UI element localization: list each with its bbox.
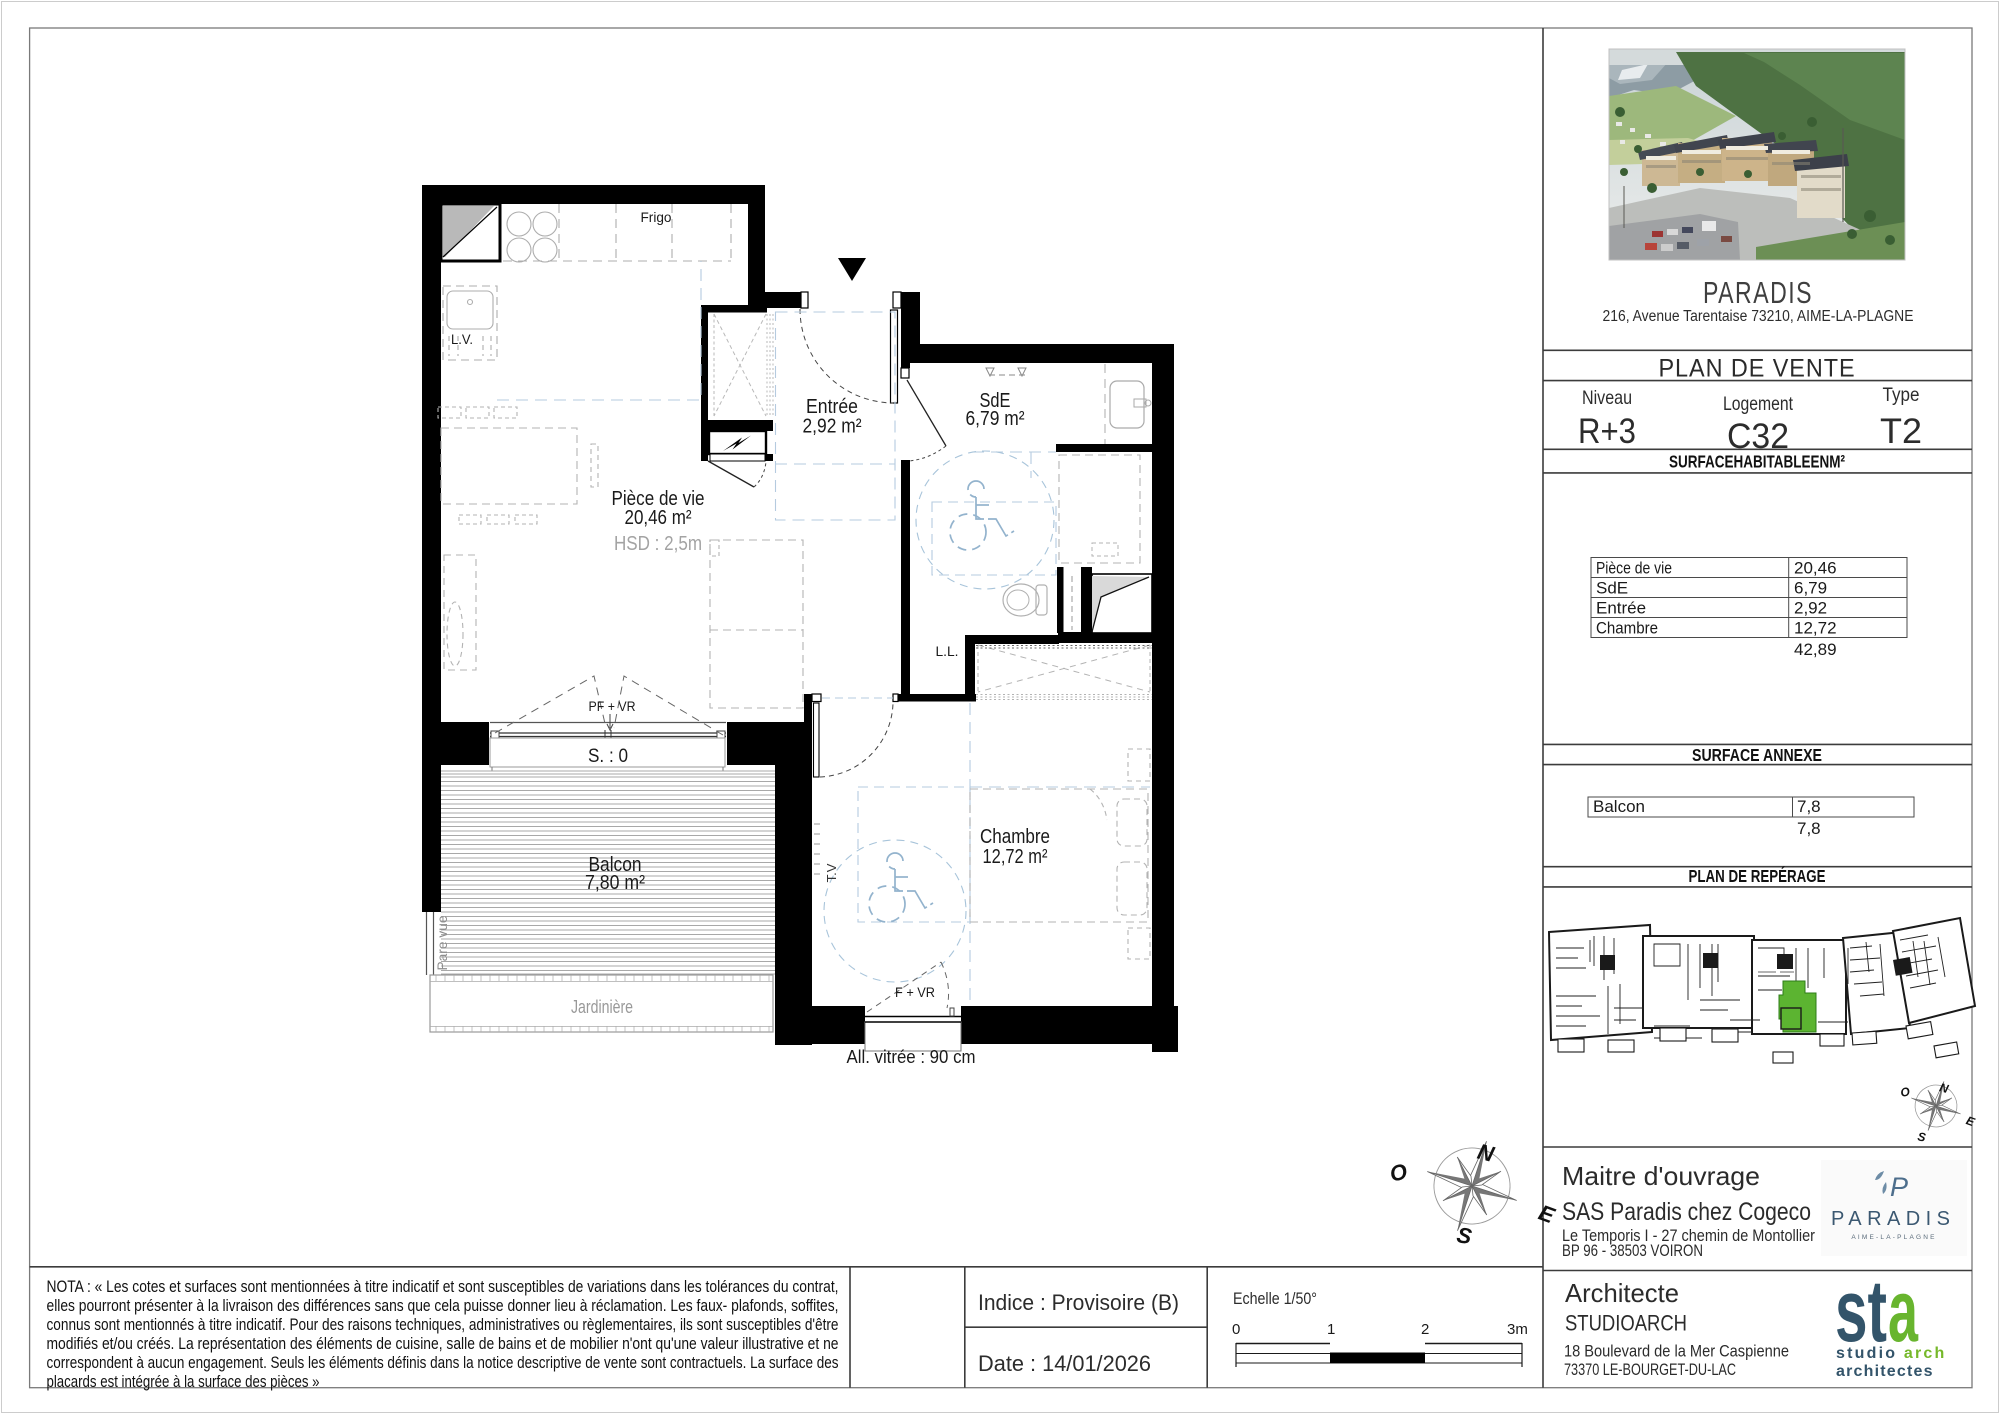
svg-text:Date : 14/01/2026: Date : 14/01/2026 bbox=[978, 1351, 1151, 1376]
svg-text:73370 LE-BOURGET-DU-LAC: 73370 LE-BOURGET-DU-LAC bbox=[1564, 1360, 1736, 1379]
svg-text:6,79: 6,79 bbox=[1794, 579, 1827, 598]
svg-text:6,79 m²: 6,79 m² bbox=[966, 408, 1025, 430]
svg-text:Pare vue: Pare vue bbox=[435, 916, 450, 971]
svg-text:T.V: T.V bbox=[824, 863, 839, 882]
svg-text:Type: Type bbox=[1883, 384, 1920, 406]
svg-text:STUDIOARCH: STUDIOARCH bbox=[1565, 1311, 1687, 1336]
svg-text:E: E bbox=[1535, 1200, 1559, 1229]
svg-text:SURFACE ANNEXE: SURFACE ANNEXE bbox=[1692, 745, 1822, 765]
svg-text:placards est intégrée à la sur: placards est intégrée à la surface des p… bbox=[47, 1373, 320, 1391]
svg-text:Niveau: Niveau bbox=[1582, 387, 1632, 409]
svg-text:SURFACEHABITABLEENM²: SURFACEHABITABLEENM² bbox=[1669, 452, 1845, 472]
svg-text:1: 1 bbox=[1327, 1321, 1335, 1338]
svg-text:F + VR: F + VR bbox=[895, 985, 935, 1000]
svg-text:modifiés et/ou créés. La repré: modifiés et/ou créés. La représentation … bbox=[47, 1335, 839, 1353]
svg-text:3m: 3m bbox=[1507, 1321, 1528, 1338]
svg-text:PLAN DE VENTE: PLAN DE VENTE bbox=[1659, 355, 1856, 383]
svg-text:AIME-LA-PLAGNE: AIME-LA-PLAGNE bbox=[1851, 1234, 1936, 1241]
svg-text:2,92 m²: 2,92 m² bbox=[803, 416, 862, 438]
svg-text:7,8: 7,8 bbox=[1797, 819, 1821, 838]
svg-text:T2: T2 bbox=[1880, 412, 1922, 451]
svg-text:SAS Paradis chez Cogeco: SAS Paradis chez Cogeco bbox=[1562, 1198, 1811, 1226]
svg-text:N: N bbox=[1938, 1080, 1950, 1096]
svg-text:L.V.: L.V. bbox=[451, 332, 473, 347]
svg-text:Chambre: Chambre bbox=[980, 826, 1050, 848]
svg-text:PF + VR: PF + VR bbox=[589, 699, 636, 714]
svg-text:2,92: 2,92 bbox=[1794, 599, 1827, 618]
svg-text:12,72 m²: 12,72 m² bbox=[983, 846, 1048, 868]
svg-text:PLAN DE REPÉRAGE: PLAN DE REPÉRAGE bbox=[1689, 865, 1826, 886]
svg-text:HSD : 2,5m: HSD : 2,5m bbox=[614, 533, 702, 555]
svg-text:2: 2 bbox=[1421, 1321, 1429, 1338]
svg-text:S: S bbox=[1455, 1222, 1474, 1249]
svg-text:216, Avenue Tarentaise 73210,: 216, Avenue Tarentaise 73210, AIME-LA-PL… bbox=[1603, 308, 1914, 325]
svg-text:Balcon: Balcon bbox=[1593, 797, 1645, 816]
svg-text:PARADIS: PARADIS bbox=[1831, 1208, 1957, 1230]
svg-text:PARADIS: PARADIS bbox=[1703, 275, 1813, 310]
svg-text:R+3: R+3 bbox=[1578, 412, 1636, 451]
svg-text:SdE: SdE bbox=[1596, 579, 1628, 598]
svg-text:connus sont mentionnés à titre: connus sont mentionnés à titre indicatif… bbox=[47, 1316, 839, 1334]
svg-text:NOTA : « Les cotes et surfaces: NOTA : « Les cotes et surfaces sont ment… bbox=[47, 1278, 839, 1296]
svg-text:Jardinière: Jardinière bbox=[571, 997, 633, 1017]
svg-text:Architecte: Architecte bbox=[1565, 1278, 1679, 1308]
svg-text:Entrée: Entrée bbox=[1596, 599, 1646, 618]
svg-text:correspondent à aucun engageme: correspondent à aucun engagement. Seuls … bbox=[47, 1354, 839, 1372]
svg-text:Indice : Provisoire (B): Indice : Provisoire (B) bbox=[978, 1290, 1179, 1315]
svg-text:18 Boulevard de la Mer Caspien: 18 Boulevard de la Mer Caspienne bbox=[1564, 1342, 1789, 1361]
svg-text:C32: C32 bbox=[1727, 417, 1789, 456]
svg-text:S. : 0: S. : 0 bbox=[588, 745, 628, 767]
svg-text:Logement: Logement bbox=[1723, 393, 1793, 415]
svg-text:S: S bbox=[1917, 1129, 1927, 1144]
svg-text:Echelle 1/50°: Echelle 1/50° bbox=[1233, 1289, 1317, 1308]
svg-text:studio arch: studio arch bbox=[1836, 1345, 1946, 1362]
svg-text:12,72: 12,72 bbox=[1794, 619, 1837, 638]
svg-text:O: O bbox=[1387, 1159, 1409, 1187]
svg-text:E: E bbox=[1964, 1113, 1977, 1129]
svg-text:Chambre: Chambre bbox=[1596, 619, 1658, 638]
svg-text:Maitre d'ouvrage: Maitre d'ouvrage bbox=[1562, 1161, 1760, 1191]
svg-text:elles pourront présenter à la: elles pourront présenter à la livraison … bbox=[47, 1297, 839, 1315]
svg-text:Frigo: Frigo bbox=[641, 210, 672, 225]
svg-text:20,46: 20,46 bbox=[1794, 559, 1837, 578]
svg-text:All. vitrée : 90 cm: All. vitrée : 90 cm bbox=[847, 1046, 976, 1067]
svg-text:7,80 m²: 7,80 m² bbox=[585, 872, 645, 894]
svg-text:7,8: 7,8 bbox=[1797, 797, 1821, 816]
svg-text:Pièce de vie: Pièce de vie bbox=[1596, 559, 1672, 578]
svg-text:architectes: architectes bbox=[1836, 1363, 1934, 1380]
svg-text:O: O bbox=[1899, 1084, 1912, 1100]
svg-text:42,89: 42,89 bbox=[1794, 640, 1837, 659]
svg-text:L.L.: L.L. bbox=[936, 644, 959, 659]
svg-text:0: 0 bbox=[1232, 1321, 1240, 1338]
svg-text:BP 96 - 38503 VOIRON: BP 96 - 38503 VOIRON bbox=[1562, 1241, 1703, 1260]
svg-text:N: N bbox=[1475, 1139, 1498, 1167]
svg-text:P: P bbox=[1890, 1172, 1908, 1202]
svg-text:20,46 m²: 20,46 m² bbox=[625, 507, 692, 529]
